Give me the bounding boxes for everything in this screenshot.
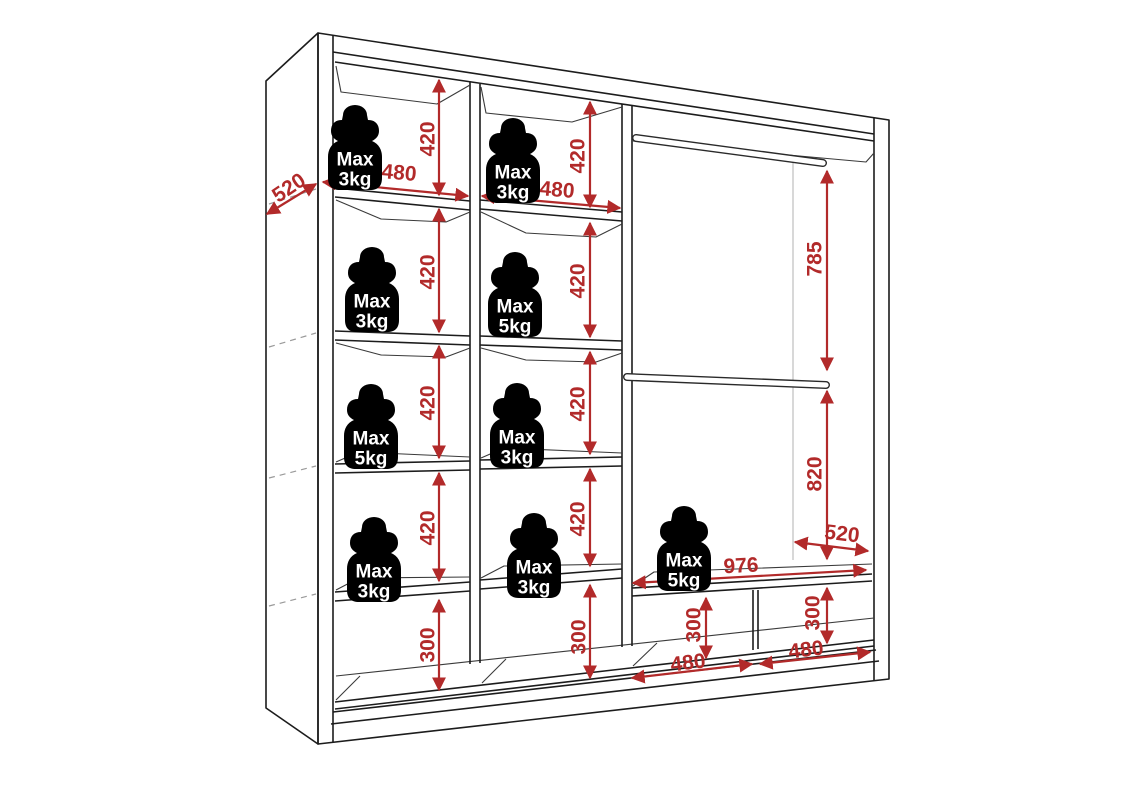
- svg-text:3kg: 3kg: [497, 183, 530, 204]
- dimension-label: 420: [567, 501, 590, 536]
- svg-text:3kg: 3kg: [339, 170, 372, 191]
- weight-icon: Max3kg: [507, 513, 561, 599]
- dimension-label: 300: [683, 607, 706, 642]
- svg-text:Max: Max: [666, 551, 703, 572]
- dimension-label: 420: [417, 510, 440, 545]
- dimension-label: 480: [669, 649, 707, 676]
- dimension-label: 520: [823, 520, 861, 547]
- diagram-canvas: 520 480 480 420 420 420 420 300 420 420 …: [0, 0, 1123, 794]
- dimension-label: 785: [804, 241, 827, 276]
- dimension-label: 420: [567, 138, 590, 173]
- hanging-rails: [627, 138, 826, 385]
- dimension-label: 820: [804, 456, 827, 491]
- svg-text:Max: Max: [499, 428, 536, 449]
- dimension-label: 420: [417, 254, 440, 289]
- svg-text:Max: Max: [497, 297, 534, 318]
- dimension-label: 420: [567, 263, 590, 298]
- dimension-label: 300: [568, 619, 591, 654]
- wardrobe-dimension-diagram: 520 480 480 420 420 420 420 300 420 420 …: [0, 0, 1123, 794]
- weight-icon: Max3kg: [490, 383, 544, 469]
- weight-icon: Max3kg: [328, 105, 382, 191]
- top-panel-edge-1: [333, 52, 874, 134]
- dimension-label: 420: [567, 386, 590, 421]
- dimension-label: 480: [381, 160, 418, 186]
- left-side-panel: [266, 33, 318, 744]
- svg-text:Max: Max: [353, 429, 390, 450]
- svg-text:Max: Max: [354, 292, 391, 313]
- svg-text:Max: Max: [495, 163, 532, 184]
- dimension-label: 480: [539, 177, 576, 203]
- svg-text:3kg: 3kg: [358, 582, 391, 603]
- svg-text:5kg: 5kg: [355, 449, 388, 470]
- weight-icon: Max3kg: [347, 517, 401, 603]
- weight-icon: Max3kg: [486, 118, 540, 204]
- svg-text:Max: Max: [337, 150, 374, 171]
- weight-icon: Max5kg: [488, 252, 542, 338]
- dimension-label: 300: [802, 595, 825, 630]
- svg-text:5kg: 5kg: [668, 571, 701, 592]
- weight-icon: Max5kg: [344, 384, 398, 470]
- svg-text:Max: Max: [516, 558, 553, 579]
- weight-icon: Max3kg: [345, 247, 399, 333]
- dimension-label: 420: [417, 385, 440, 420]
- svg-text:3kg: 3kg: [518, 578, 551, 599]
- svg-text:5kg: 5kg: [499, 317, 532, 338]
- front-frame-outline: [318, 33, 889, 744]
- svg-text:3kg: 3kg: [356, 312, 389, 333]
- svg-text:3kg: 3kg: [501, 448, 534, 469]
- svg-text:Max: Max: [356, 562, 393, 583]
- dimension-label: 420: [417, 121, 440, 156]
- weight-icon: Max5kg: [657, 506, 711, 592]
- dimension-label: 976: [723, 554, 759, 579]
- dimension-label: 480: [787, 636, 825, 663]
- dimension-label: 300: [417, 627, 440, 662]
